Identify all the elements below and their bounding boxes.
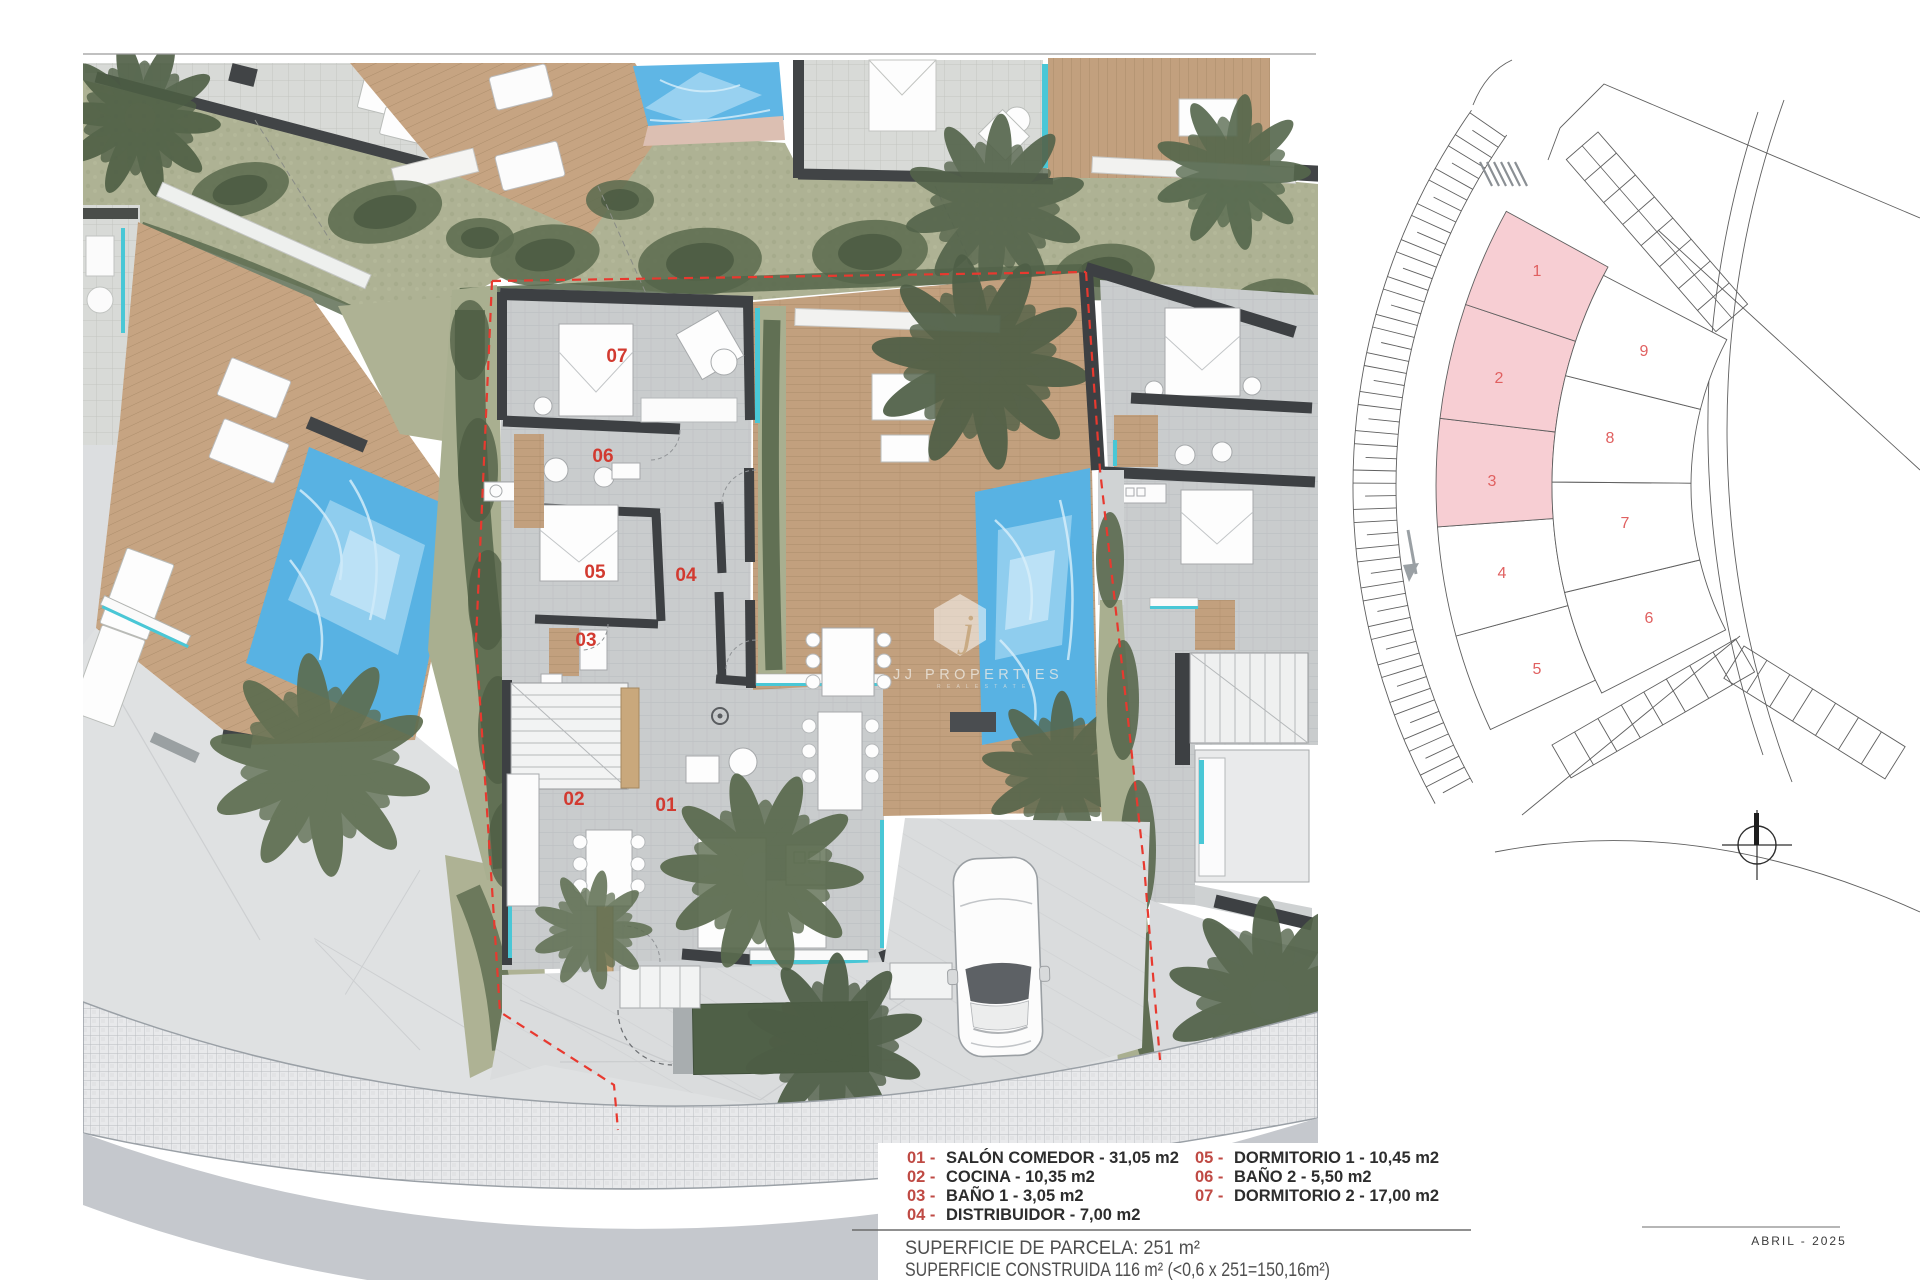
svg-text:02: 02	[563, 789, 584, 810]
svg-text:04: 04	[675, 565, 697, 586]
svg-text:01 -: 01 -	[907, 1149, 935, 1167]
svg-text:DORMITORIO 1 - 10,45 m2: DORMITORIO 1 - 10,45 m2	[1234, 1149, 1439, 1167]
svg-text:6: 6	[1645, 610, 1654, 627]
svg-text:COCINA - 10,35 m2: COCINA - 10,35 m2	[946, 1168, 1095, 1186]
svg-text:04 -: 04 -	[907, 1206, 935, 1224]
svg-text:9: 9	[1640, 343, 1649, 360]
svg-text:07 -: 07 -	[1195, 1187, 1223, 1205]
svg-text:5: 5	[1533, 661, 1542, 678]
svg-text:06 -: 06 -	[1195, 1168, 1223, 1186]
svg-text:1: 1	[1533, 263, 1542, 280]
svg-text:8: 8	[1606, 430, 1615, 447]
svg-text:05 -: 05 -	[1195, 1149, 1223, 1167]
svg-text:ABRIL - 2025: ABRIL - 2025	[1751, 1234, 1847, 1248]
svg-text:06: 06	[592, 446, 613, 467]
svg-text:BAÑO 1 - 3,05 m2: BAÑO 1 - 3,05 m2	[946, 1185, 1084, 1205]
svg-text:SALÓN COMEDOR - 31,05 m2: SALÓN COMEDOR - 31,05 m2	[946, 1148, 1179, 1167]
svg-text:4: 4	[1498, 565, 1507, 582]
svg-text:02 -: 02 -	[907, 1168, 935, 1186]
svg-text:BAÑO 2 - 5,50 m2: BAÑO 2 - 5,50 m2	[1234, 1166, 1372, 1186]
svg-text:3: 3	[1488, 473, 1497, 490]
svg-text:05: 05	[584, 562, 606, 583]
svg-text:7: 7	[1621, 515, 1630, 532]
svg-text:03 -: 03 -	[907, 1187, 935, 1205]
svg-text:2: 2	[1495, 370, 1504, 387]
svg-text:JJ PROPERTIES: JJ PROPERTIES	[893, 667, 1063, 683]
svg-text:SUPERFICIE CONSTRUIDA 116 m² (: SUPERFICIE CONSTRUIDA 116 m² (<0,6 x 251…	[905, 1259, 1330, 1280]
svg-text:01: 01	[655, 795, 677, 816]
svg-text:DORMITORIO 2 - 17,00 m2: DORMITORIO 2 - 17,00 m2	[1234, 1187, 1439, 1205]
svg-text:R E A L E S T A T E: R E A L E S T A T E	[937, 684, 1028, 690]
svg-text:07: 07	[606, 346, 627, 367]
svg-text:SUPERFICIE DE PARCELA: 251 m²: SUPERFICIE DE PARCELA: 251 m²	[905, 1237, 1200, 1259]
svg-text:DISTRIBUIDOR - 7,00 m2: DISTRIBUIDOR - 7,00 m2	[946, 1206, 1140, 1224]
